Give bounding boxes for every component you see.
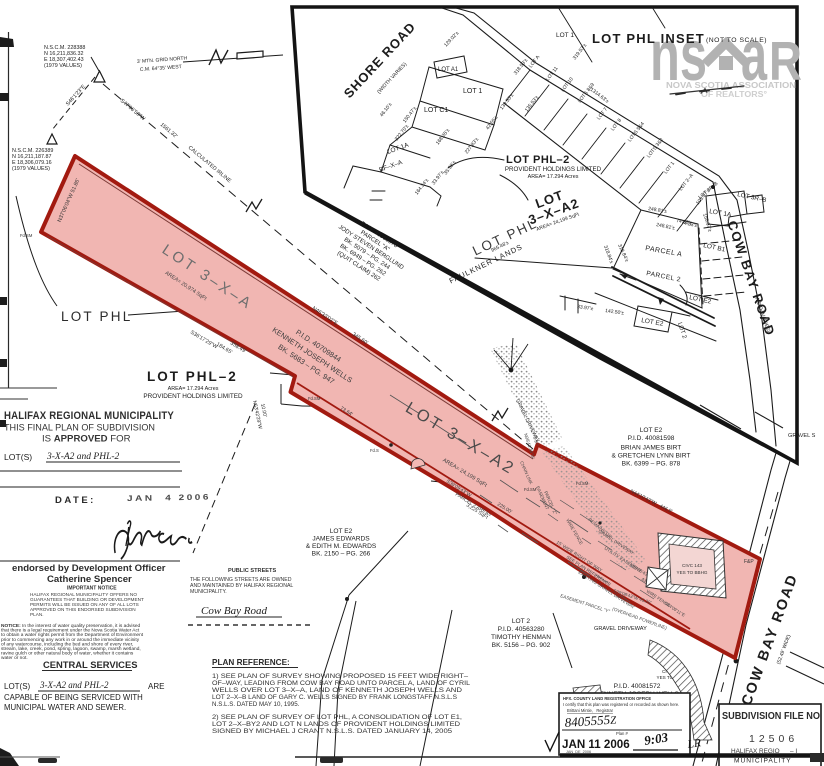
svg-text:JAN 4 2006: JAN 4 2006 [127, 493, 211, 503]
svg-text:LOT E2: LOT E2 [640, 427, 663, 434]
svg-text:3-X-A2 and PHL-2: 3-X-A2 and PHL-2 [39, 680, 109, 690]
svg-text:HALIFAX REGIONAL MUNICIPALITY: HALIFAX REGIONAL MUNICIPALITY [4, 410, 174, 422]
svg-text:ARE: ARE [148, 682, 164, 691]
svg-text:CAPABLE OF BEING SERVICED: CAPABLE OF BEING SERVICED WITH [4, 693, 143, 702]
svg-text:P.I.D. 40081572: P.I.D. 40081572 [614, 683, 661, 690]
svg-text:THIS FINAL PLAN OF SUBDIVISION: THIS FINAL PLAN OF SUBDIVISION [4, 423, 155, 434]
svg-text:Fd.SM: Fd.SM [20, 233, 33, 238]
svg-text:SIGNED BY MICHAEL J CRANT: SIGNED BY MICHAEL J CRANT N.S.L.S. DATED… [212, 728, 453, 735]
svg-text:OF–WAY, LEADING FROM COW B: OF–WAY, LEADING FROM COW BAY ROAD UNTO P… [212, 680, 471, 687]
svg-text:LOT 1: LOT 1 [463, 88, 482, 95]
svg-text:APPROVED ON THIS ENDORSED SUBD: APPROVED ON THIS ENDORSED SUBDIVISION [30, 607, 136, 612]
svg-text:& EDITH M. EDWARDS: & EDITH M. EDWARDS [306, 543, 377, 550]
svg-text:LOT PHL: LOT PHL [61, 309, 132, 324]
svg-text:MUNICIPALITY.: MUNICIPALITY. [190, 589, 227, 595]
svg-text:PLAN.: PLAN. [30, 612, 44, 617]
svg-text:LOT E2: LOT E2 [330, 528, 353, 535]
svg-text:12506: 12506 [749, 733, 798, 745]
svg-text:TIMOTHY HENMAN: TIMOTHY HENMAN [491, 634, 551, 641]
svg-text:DATE:: DATE: [55, 495, 96, 506]
svg-text:Fd.SM: Fd.SM [524, 487, 537, 492]
svg-text:YES TO BBHG: YES TO BBHG [677, 570, 708, 575]
svg-text:BK. 6399 – PG. 878: BK. 6399 – PG. 878 [622, 461, 681, 468]
svg-text:I certify that this plan was r: I certify that this plan was registered … [563, 702, 679, 707]
svg-text:water or not.: water or not. [1, 655, 28, 661]
svg-text:P.I.D. 40081598: P.I.D. 40081598 [628, 435, 675, 442]
svg-text:LOT PHL–2: LOT PHL–2 [147, 369, 238, 384]
svg-text:(NOT TO SCALE): (NOT TO SCALE) [706, 37, 767, 44]
svg-text:1) SEE PLAN OF SURVEY SHO: 1) SEE PLAN OF SURVEY SHOWING PROPOSED 1… [212, 673, 469, 680]
svg-text:BK. 2150 – PG. 266: BK. 2150 – PG. 266 [312, 551, 371, 558]
svg-text:MUNICIPAL WATER AND SEWER.: MUNICIPAL WATER AND SEWER. [4, 703, 126, 712]
svg-text:Fd.SM: Fd.SM [308, 396, 321, 401]
svg-text:Plan #: Plan # [616, 731, 629, 736]
svg-text:(1979 VALUES): (1979 VALUES) [12, 166, 50, 172]
svg-text:Fd.SM: Fd.SM [576, 481, 589, 486]
svg-text:P.I.D. 40563280: P.I.D. 40563280 [498, 626, 545, 633]
svg-text:HFX. COUNTY LAND REGISTRATION: HFX. COUNTY LAND REGISTRATION OFFICE [563, 696, 651, 701]
svg-text:LOT(S): LOT(S) [4, 682, 31, 691]
svg-text:WELLS OVER LOT 3–X–A, LAND: WELLS OVER LOT 3–X–A, LAND OF KENNETH JO… [212, 687, 463, 694]
svg-text:(1979 VALUES): (1979 VALUES) [44, 63, 82, 69]
svg-text:endorsed by Development Office: endorsed by Development Officer [12, 563, 166, 574]
svg-text:LOT A1: LOT A1 [438, 67, 459, 73]
svg-text:GRAVEL DRIVEWAY: GRAVEL DRIVEWAY [594, 626, 647, 632]
svg-text:Cow Bay Road: Cow Bay Road [201, 605, 267, 617]
svg-text:PUBLIC STREETS: PUBLIC STREETS [228, 568, 276, 574]
svg-text:PLAN REFERENCE:: PLAN REFERENCE: [212, 658, 290, 667]
svg-text:F&P: F&P [744, 559, 754, 565]
svg-text:LOT 2: LOT 2 [512, 618, 531, 625]
svg-text:LOT 2–X–BY2 AND LOT N LAN: LOT 2–X–BY2 AND LOT N LANDS OF PROVIDENT… [212, 721, 461, 728]
svg-text:LOT C1: LOT C1 [424, 107, 448, 114]
svg-text:AREA= 17.294 Acres: AREA= 17.294 Acres [168, 386, 219, 392]
svg-text:3-X-A2 and PHL-2: 3-X-A2 and PHL-2 [46, 452, 120, 462]
svg-text:& GRETCHEN LYNN BIRT: & GRETCHEN LYNN BIRT [612, 453, 691, 460]
svg-text:PROVIDENT HOLDINGS LIMITED: PROVIDENT HOLDINGS LIMITED [143, 393, 243, 400]
svg-text:GRAVEL S: GRAVEL S [788, 433, 816, 439]
svg-text:LOT PHL–2: LOT PHL–2 [506, 154, 570, 166]
svg-text:IS APPROVED FOR: IS APPROVED FOR [42, 434, 131, 445]
svg-text:Catherine Spencer: Catherine Spencer [47, 574, 132, 585]
svg-text:MUNICIPALITY: MUNICIPALITY [734, 758, 792, 765]
svg-text:N.S.L.S. DATED MAY 10, 199: N.S.L.S. DATED MAY 10, 1995. [212, 701, 300, 708]
svg-text:LOT PHL INSET: LOT PHL INSET [592, 31, 705, 46]
svg-text:2) SEE PLAN OF SURVEY OF: 2) SEE PLAN OF SURVEY OF LOT PHL, A CONS… [212, 714, 462, 721]
svg-text:BRIAN JAMES BIRT: BRIAN JAMES BIRT [621, 445, 682, 452]
svg-text:OF REALTORS°: OF REALTORS° [701, 89, 768, 99]
svg-text:LOT 2–X–B LAND OF GARY C.: LOT 2–X–B LAND OF GARY C. WELLS SIGNED B… [212, 694, 457, 701]
svg-text:CENTRAL SERVICES: CENTRAL SERVICES [43, 659, 137, 670]
svg-text:Fd.S: Fd.S [370, 448, 379, 453]
svg-text:JAMES EDWARDS: JAMES EDWARDS [312, 536, 370, 543]
svg-text:LOT 1: LOT 1 [556, 32, 574, 39]
svg-text:CIVC 143: CIVC 143 [682, 563, 702, 568]
svg-text:LR: LR [686, 737, 702, 751]
svg-text:SUBDIVISION FILE NO: SUBDIVISION FILE NO [722, 711, 820, 722]
svg-text:IMPORTANT NOTICE: IMPORTANT NOTICE [67, 586, 117, 592]
svg-text:BK. 5156 – PG. 902: BK. 5156 – PG. 902 [492, 642, 551, 649]
svg-text:LOT(S): LOT(S) [4, 452, 32, 462]
svg-text:AREA= 17.294 Acres: AREA= 17.294 Acres [528, 174, 579, 180]
svg-text:PROVIDENT HOLDINGS LIMITED: PROVIDENT HOLDINGS LIMITED [505, 166, 602, 173]
